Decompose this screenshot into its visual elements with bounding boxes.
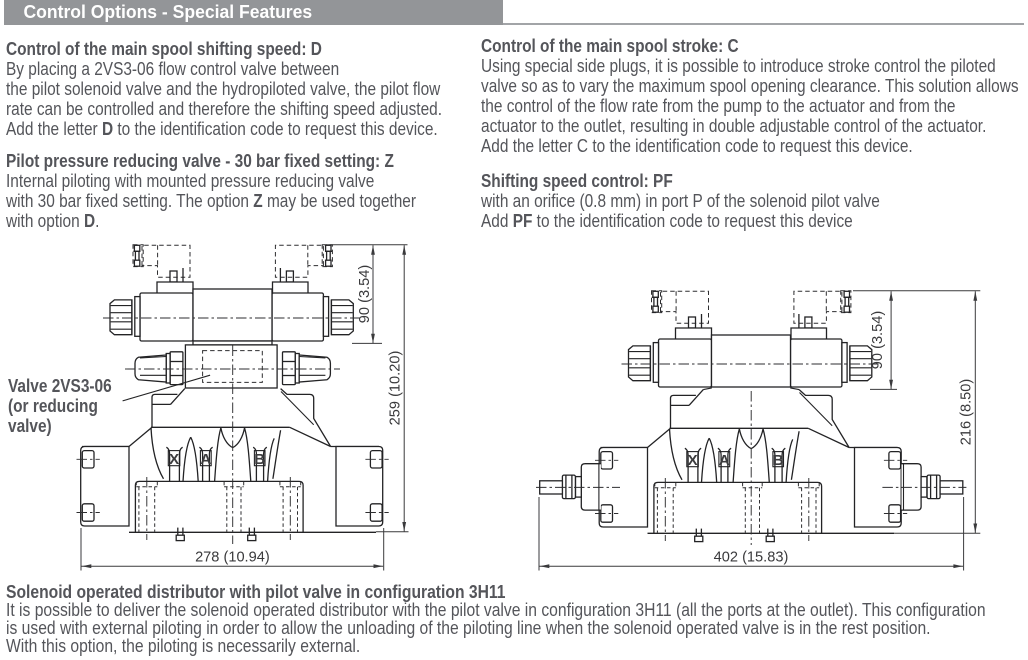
svg-text:216 (8.50): 216 (8.50): [959, 379, 975, 446]
svg-text:90 (3.54): 90 (3.54): [870, 311, 886, 369]
svg-text:402 (15.83): 402 (15.83): [714, 550, 789, 566]
svg-text:90 (3.54): 90 (3.54): [357, 265, 373, 323]
svg-text:259 (10.20): 259 (10.20): [387, 351, 403, 426]
svg-text:278 (10.94): 278 (10.94): [195, 550, 270, 566]
